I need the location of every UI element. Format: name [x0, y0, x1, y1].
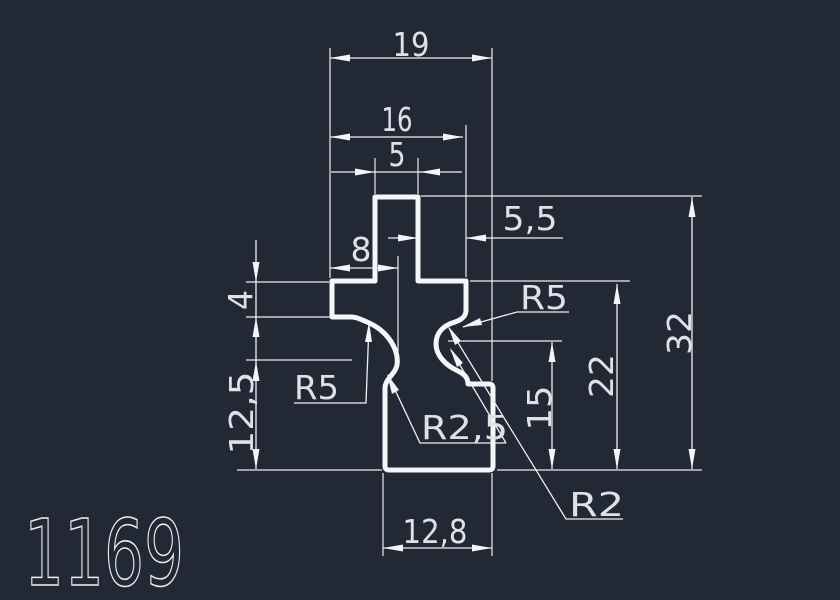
- cad-drawing-canvas: 19 16 5 5,5 8 12,8 4 12,5 15 22 32 R5 R5…: [0, 0, 840, 600]
- dim-lower-height-label: 12,5: [222, 372, 261, 455]
- arrowhead: [689, 449, 696, 469]
- dim-arm-thickness-label: 4: [221, 290, 260, 310]
- arrowhead: [443, 134, 463, 141]
- dim-stub-width-label: 5: [389, 135, 406, 174]
- dim-neck-height-label: 15: [520, 386, 559, 431]
- arrowhead: [472, 55, 492, 62]
- arrowhead: [450, 348, 463, 367]
- extension-lines: [237, 48, 702, 556]
- arrowheads: [253, 55, 696, 552]
- arrowhead: [420, 169, 440, 176]
- dim-base-width-label: 12,8: [403, 512, 468, 551]
- arrowhead: [355, 169, 375, 176]
- arrowhead: [378, 265, 398, 272]
- radius-flare-label: R2,5: [421, 408, 508, 447]
- technical-drawing: 19 16 5 5,5 8 12,8 4 12,5 15 22 32 R5 R5…: [0, 0, 840, 600]
- dimension-lines: [256, 58, 692, 548]
- arrowhead: [472, 545, 492, 552]
- arrowhead: [330, 134, 350, 141]
- dim-arms-width-label: 16: [382, 100, 413, 139]
- radius-fillet-label: R2: [569, 485, 624, 524]
- arrowhead: [549, 342, 556, 362]
- arrowhead: [398, 235, 418, 242]
- arrowhead: [383, 545, 403, 552]
- arrowhead: [466, 235, 486, 242]
- arrowhead: [462, 318, 482, 327]
- dim-neck-offset-label: 8: [351, 230, 372, 269]
- arrowhead: [330, 55, 350, 62]
- arrowhead: [689, 197, 696, 217]
- part-number: 1169: [24, 500, 184, 600]
- dim-arm-height-label: 22: [582, 354, 621, 398]
- dim-overall-width-label: 19: [393, 25, 430, 64]
- dim-overall-height-label: 32: [660, 311, 699, 355]
- arrowhead: [549, 449, 556, 469]
- arrowhead: [253, 317, 260, 337]
- arrowhead: [253, 262, 260, 282]
- dim-stub-offset-label: 5,5: [503, 199, 558, 238]
- arrowhead: [330, 265, 350, 272]
- arrowhead: [614, 284, 621, 304]
- radius-left-cove-label: R5: [294, 368, 339, 407]
- arrowhead: [614, 449, 621, 469]
- arrowhead: [448, 326, 461, 345]
- radius-right-cove-label: R5: [520, 278, 568, 317]
